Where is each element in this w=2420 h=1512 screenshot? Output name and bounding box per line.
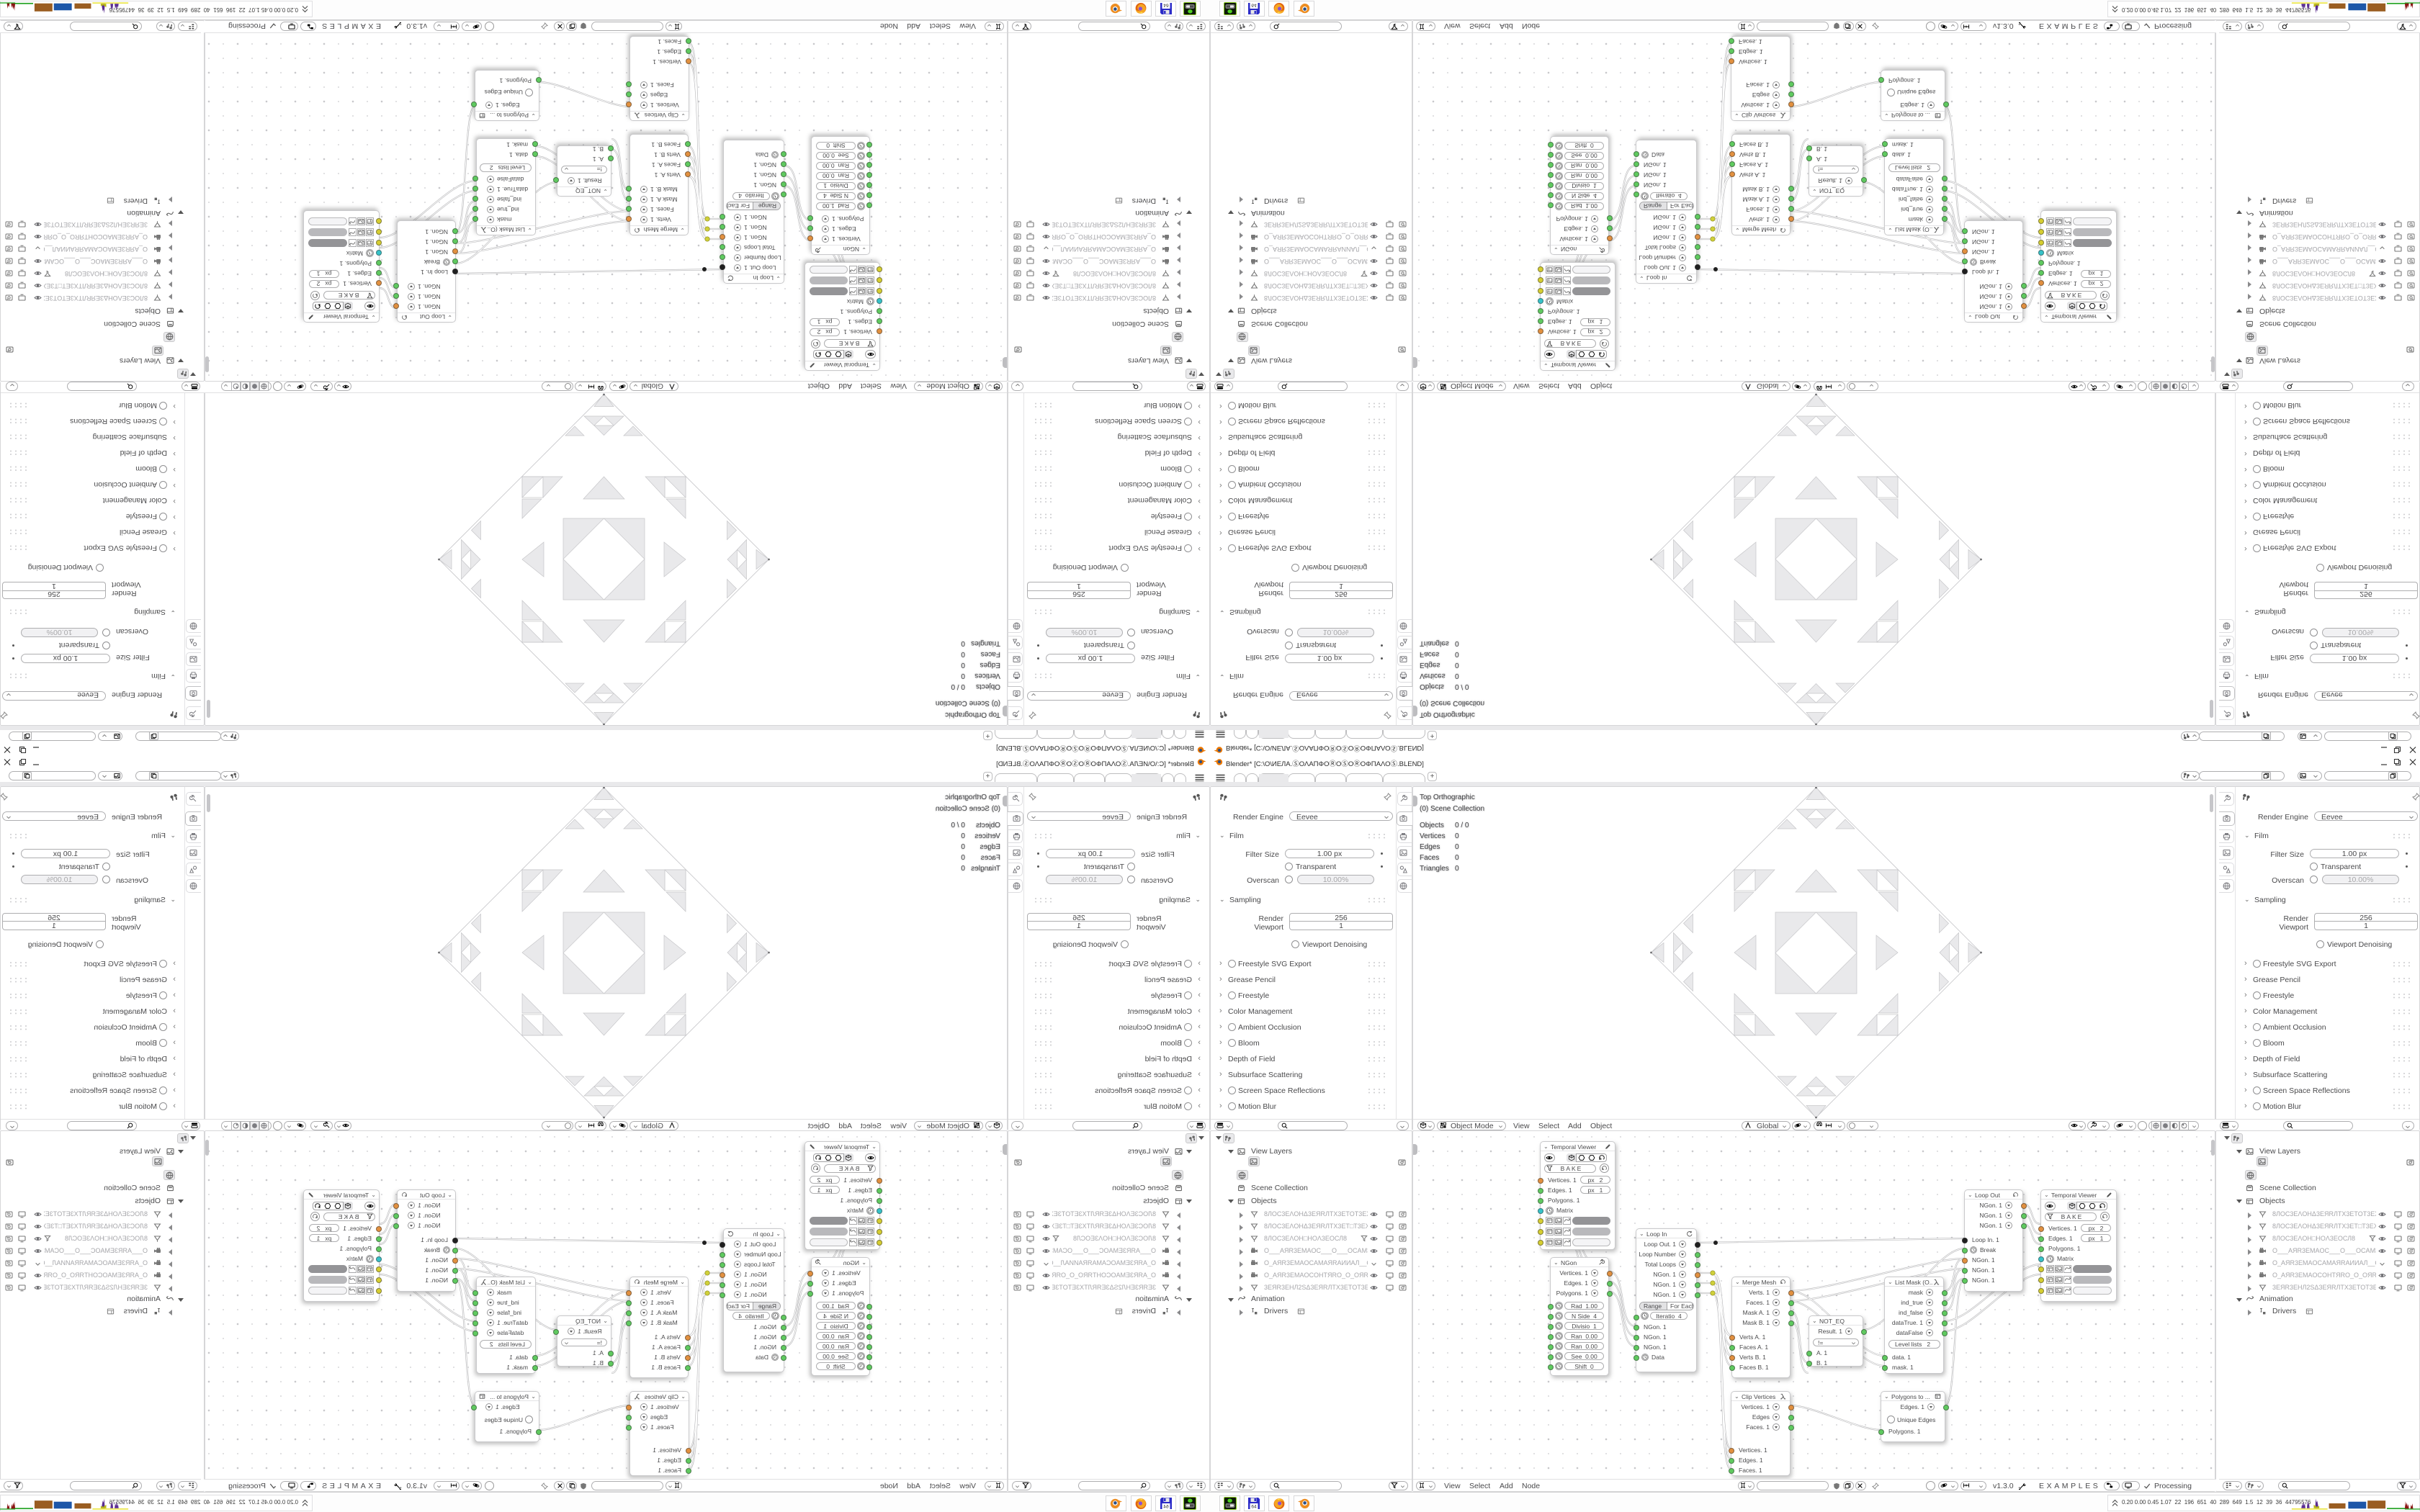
svg-text:64: 64 xyxy=(1163,3,1169,8)
svg-text:64: 64 xyxy=(1163,1505,1169,1510)
svg-text:64: 64 xyxy=(1252,1505,1258,1510)
svg-text:64: 64 xyxy=(1252,3,1258,8)
